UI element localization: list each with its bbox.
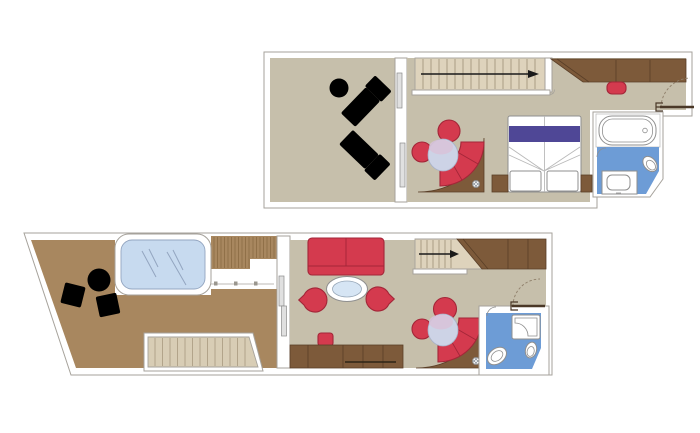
- outdoor-chair: [96, 293, 121, 318]
- sliding-door-panel: [282, 306, 287, 336]
- desk: [290, 345, 403, 368]
- upper-stool: [607, 82, 626, 94]
- flower-icon: [473, 181, 480, 188]
- lower-bathroom: [479, 306, 549, 375]
- oval-glass-table: [327, 277, 368, 302]
- washbasin: [602, 171, 637, 194]
- shower: [512, 315, 540, 339]
- double-bed: [508, 116, 581, 192]
- bathtub: [599, 116, 656, 145]
- upper-bathroom: [593, 112, 663, 197]
- sliding-door-panel: [400, 143, 405, 187]
- floor-plan-canvas: [0, 0, 700, 433]
- bed-foot-cover: [547, 171, 578, 191]
- upper-staircase: [412, 58, 555, 95]
- floor-plan-page: [0, 0, 700, 433]
- nightstand: [492, 175, 508, 192]
- bed-foot-cover: [510, 171, 541, 191]
- stair-railing: [413, 269, 467, 274]
- sliding-door-panel: [397, 73, 402, 108]
- bed-pillow-band: [509, 126, 580, 142]
- lower-stool: [318, 333, 333, 346]
- stair-side-wall: [545, 58, 552, 92]
- sofa: [308, 238, 384, 275]
- terrace-round-table: [88, 269, 111, 292]
- upper-balcony-round-table: [330, 79, 349, 98]
- outdoor-staircase: [144, 333, 263, 371]
- flower-icon: [473, 358, 480, 365]
- stair-railing: [412, 90, 550, 95]
- sliding-door-panel: [279, 276, 284, 306]
- whirlpool: [115, 234, 211, 295]
- nightstand: [581, 175, 592, 192]
- lower-floor-plan: [24, 233, 552, 375]
- upper-floor-plan: [264, 52, 694, 208]
